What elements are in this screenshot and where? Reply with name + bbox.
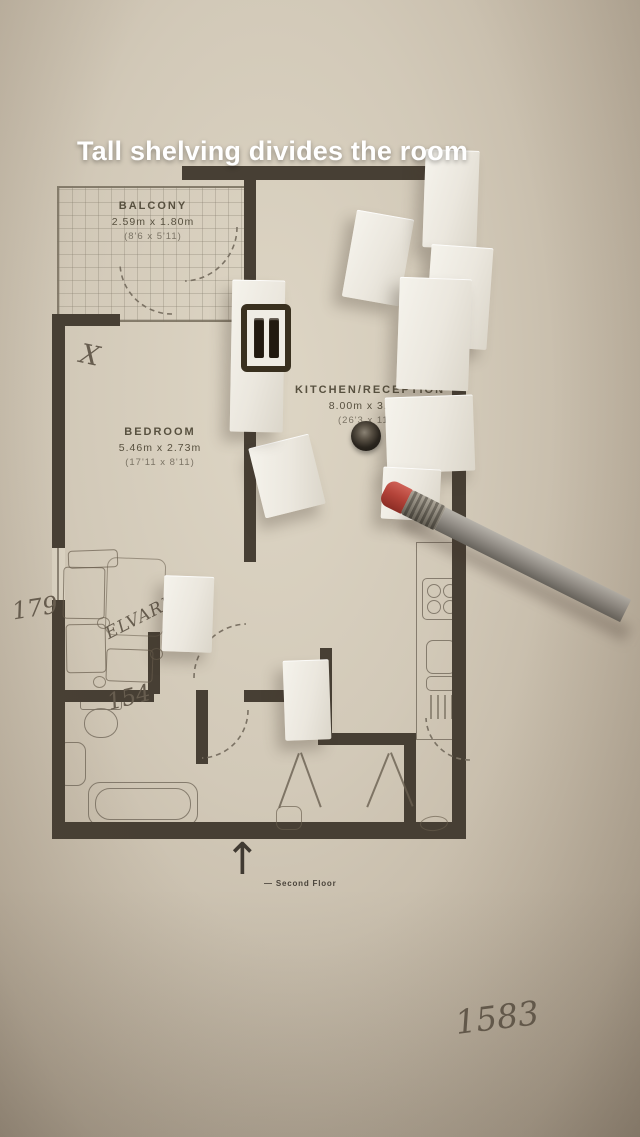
hall-door-line — [366, 753, 390, 808]
model-shelving-frame — [241, 304, 291, 372]
model-block-sofa — [248, 434, 326, 519]
bathtub-inner — [95, 788, 191, 820]
wall-hall-h — [318, 733, 416, 745]
door-arc-bathroom — [200, 708, 252, 760]
sketch-bed — [66, 624, 107, 674]
wall-divider-top — [244, 166, 256, 286]
sketch-blob — [93, 676, 106, 688]
wall-hall-v2 — [404, 745, 416, 825]
floor-note: — Second Floor — [264, 879, 337, 888]
bedroom-metric: 5.46m x 2.73m — [85, 442, 235, 454]
hall-door-line — [278, 753, 300, 808]
shelving-frame-cell — [254, 318, 264, 358]
north-arrow-icon: ↑ — [224, 838, 261, 882]
handwritten-x-mark: X — [77, 338, 102, 372]
wall-balcony-bottom — [52, 314, 120, 326]
room-label-balcony: BALCONY 2.59m x 1.80m (8'6 x 5'11) — [78, 200, 228, 242]
hall-door-line — [300, 752, 322, 807]
sketch-doorstop — [276, 806, 302, 830]
model-block-hall — [283, 659, 332, 741]
video-caption: Tall shelving divides the room — [0, 136, 545, 167]
bedroom-name: BEDROOM — [85, 426, 235, 438]
sketch-wardrobe — [63, 567, 106, 620]
pin-dot — [351, 421, 381, 451]
handwritten-1583: 1583 — [453, 993, 541, 1042]
model-block-doorway — [162, 575, 215, 653]
sketch-table — [105, 648, 153, 683]
video-frame: BALCONY 2.59m x 1.80m (8'6 x 5'11) BEDRO… — [0, 0, 640, 1137]
balcony-metric: 2.59m x 1.80m — [78, 216, 228, 228]
door-arc-balcony-2 — [118, 262, 174, 318]
room-label-bedroom: BEDROOM 5.46m x 2.73m (17'11 x 8'11) — [85, 426, 235, 468]
model-block-kitchen-a — [396, 277, 472, 391]
balcony-imperial: (8'6 x 5'11) — [78, 231, 228, 242]
door-arc-entry — [424, 716, 472, 764]
wall-top — [182, 166, 464, 180]
model-block-kitchen-b — [385, 394, 476, 473]
bedroom-imperial: (17'11 x 8'11) — [85, 457, 235, 468]
shelving-frame-cell — [269, 318, 279, 358]
balcony-name: BALCONY — [78, 200, 228, 212]
handwritten-154: 154 — [105, 680, 154, 716]
